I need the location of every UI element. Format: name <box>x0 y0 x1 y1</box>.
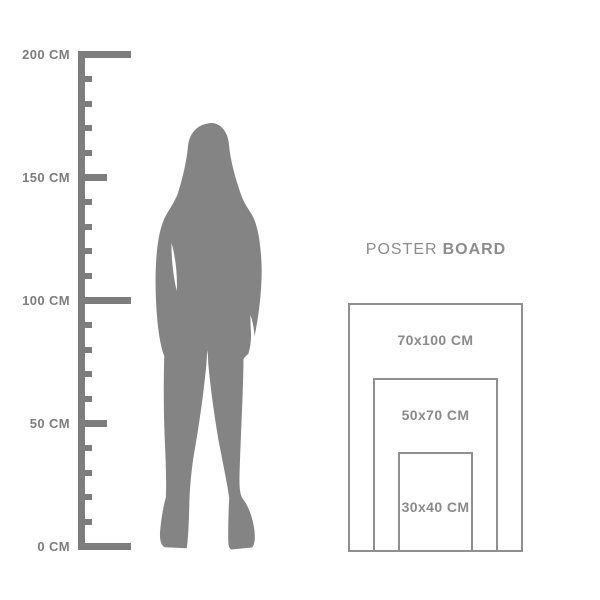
poster-size-diagram: 70x100 CM50x70 CM30x40 CM <box>0 0 600 600</box>
poster-size-label: 50x70 CM <box>356 407 516 423</box>
poster-size-label: 30x40 CM <box>356 499 516 515</box>
poster-size-label: 70x100 CM <box>356 332 516 348</box>
